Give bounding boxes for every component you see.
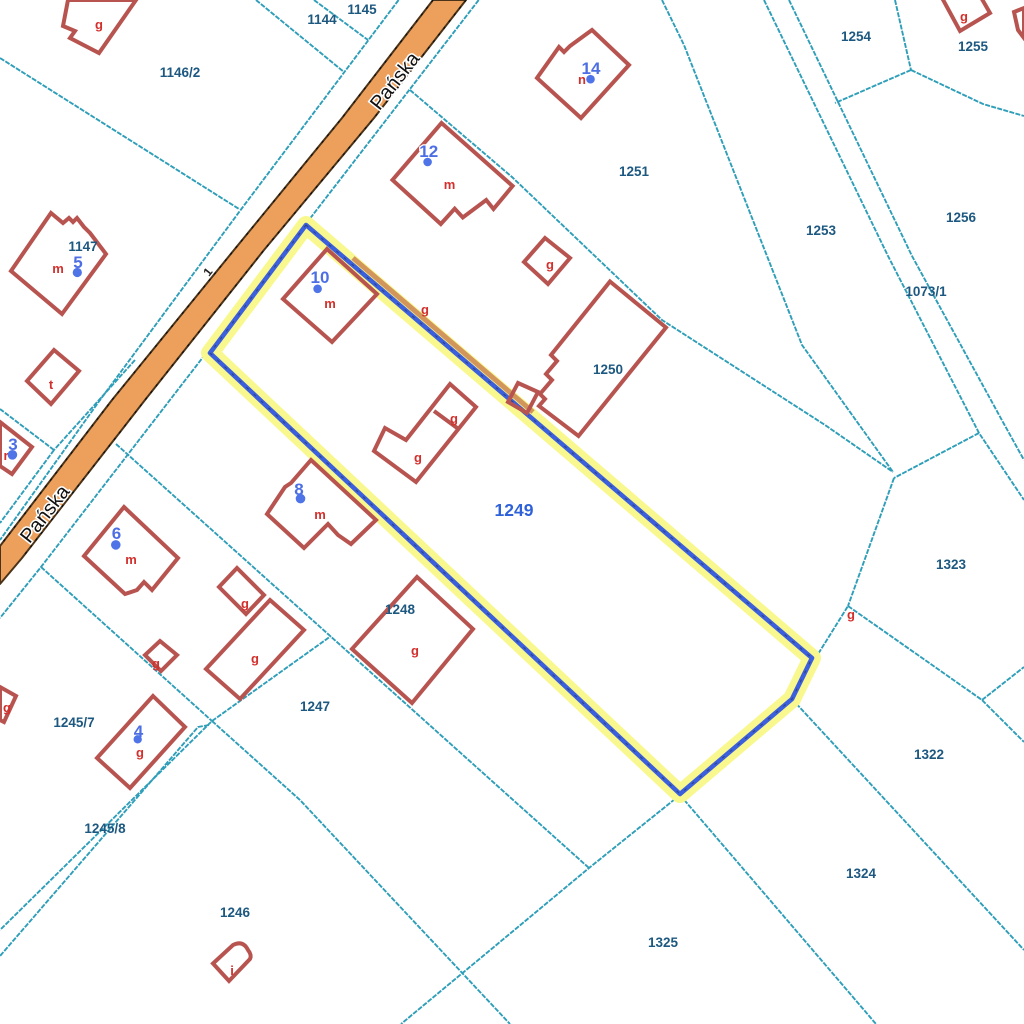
svg-text:1245/7: 1245/7 bbox=[53, 715, 94, 730]
svg-text:m: m bbox=[52, 261, 64, 276]
svg-text:1256: 1256 bbox=[946, 210, 977, 225]
svg-text:1250: 1250 bbox=[593, 362, 623, 377]
svg-text:i: i bbox=[230, 963, 234, 978]
svg-text:1245/8: 1245/8 bbox=[84, 821, 126, 836]
svg-text:g: g bbox=[414, 450, 422, 465]
svg-text:m: m bbox=[125, 552, 137, 567]
svg-text:1324: 1324 bbox=[846, 866, 877, 881]
svg-text:g: g bbox=[421, 302, 429, 317]
svg-text:g: g bbox=[136, 745, 144, 760]
svg-text:1146/2: 1146/2 bbox=[160, 65, 201, 80]
svg-text:g: g bbox=[847, 607, 855, 622]
svg-text:1246: 1246 bbox=[220, 905, 251, 920]
svg-text:g: g bbox=[546, 257, 554, 272]
svg-text:1251: 1251 bbox=[619, 164, 650, 179]
svg-text:g: g bbox=[95, 17, 103, 32]
svg-text:1145: 1145 bbox=[347, 2, 377, 17]
svg-text:1147: 1147 bbox=[68, 239, 97, 254]
svg-text:1254: 1254 bbox=[841, 29, 872, 44]
svg-text:m: m bbox=[444, 177, 456, 192]
svg-text:g: g bbox=[152, 656, 160, 671]
svg-text:1325: 1325 bbox=[648, 935, 679, 950]
svg-text:1322: 1322 bbox=[914, 747, 944, 762]
svg-text:g: g bbox=[3, 700, 11, 715]
svg-text:g: g bbox=[411, 643, 419, 658]
svg-text:g: g bbox=[450, 411, 458, 426]
svg-text:6: 6 bbox=[112, 524, 121, 543]
svg-text:g: g bbox=[241, 596, 249, 611]
svg-text:g: g bbox=[251, 651, 259, 666]
svg-text:1144: 1144 bbox=[307, 12, 337, 27]
svg-text:m: m bbox=[314, 507, 326, 522]
svg-text:t: t bbox=[49, 377, 54, 392]
svg-text:1247: 1247 bbox=[300, 699, 330, 714]
svg-text:1073/1: 1073/1 bbox=[905, 284, 947, 299]
svg-text:1323: 1323 bbox=[936, 557, 967, 572]
svg-text:g: g bbox=[960, 9, 968, 24]
svg-text:1249: 1249 bbox=[495, 500, 534, 520]
svg-text:1253: 1253 bbox=[806, 223, 837, 238]
svg-text:m: m bbox=[324, 296, 336, 311]
svg-text:10: 10 bbox=[311, 268, 330, 287]
svg-text:1255: 1255 bbox=[958, 39, 989, 54]
svg-text:1248: 1248 bbox=[385, 602, 416, 617]
